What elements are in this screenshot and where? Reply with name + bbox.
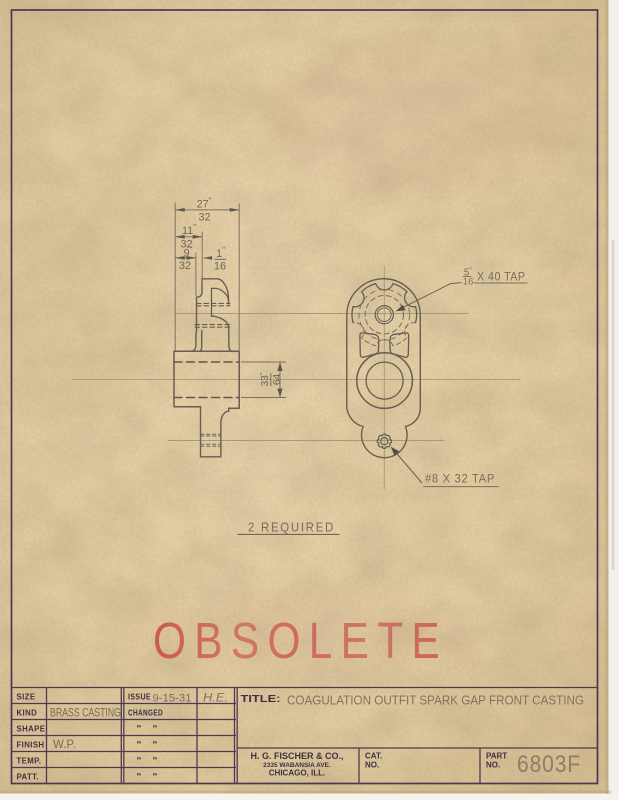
svg-text:9-15-31: 9-15-31 xyxy=(153,693,192,705)
svg-text:": " xyxy=(137,740,142,751)
svg-text:32: 32 xyxy=(198,212,210,224)
svg-text:CHANGED: CHANGED xyxy=(128,709,163,718)
svg-text:H.E.: H.E. xyxy=(203,693,228,705)
svg-text:NO.: NO. xyxy=(486,761,500,770)
svg-text:CAT.: CAT. xyxy=(365,752,382,761)
svg-text:#8 X 32 TAP: #8 X 32 TAP xyxy=(425,472,495,486)
svg-text:BRASS CASTING: BRASS CASTING xyxy=(50,708,121,720)
svg-text:SHAPE: SHAPE xyxy=(17,725,46,734)
svg-text:": " xyxy=(137,772,142,783)
svg-text:SIZE: SIZE xyxy=(17,693,36,702)
svg-text:": " xyxy=(153,772,158,783)
svg-text:ISSUE: ISSUE xyxy=(128,693,151,702)
svg-text:": " xyxy=(153,756,158,767)
svg-text:NO.: NO. xyxy=(365,761,379,770)
svg-text:TITLE:: TITLE: xyxy=(241,693,281,705)
svg-text:COAGULATION OUTFIT SPARK GAP F: COAGULATION OUTFIT SPARK GAP FRONT CASTI… xyxy=(287,694,584,708)
svg-text:64: 64 xyxy=(272,374,283,386)
svg-text:KIND: KIND xyxy=(17,709,38,718)
svg-text:X 40 TAP: X 40 TAP xyxy=(477,269,526,283)
svg-text:FINISH: FINISH xyxy=(17,741,45,750)
svg-text:16: 16 xyxy=(214,261,226,273)
svg-text:16: 16 xyxy=(463,276,474,287)
svg-text:TEMP.: TEMP. xyxy=(17,757,42,766)
svg-text:CHICAGO, ILL.: CHICAGO, ILL. xyxy=(269,769,325,778)
svg-text:OBSOLETE: OBSOLETE xyxy=(153,612,448,669)
svg-text:PART: PART xyxy=(486,752,507,761)
svg-text:": " xyxy=(137,756,142,767)
svg-text:": " xyxy=(137,724,142,735)
svg-text:2 REQUIRED: 2 REQUIRED xyxy=(248,520,335,535)
svg-text:6803F: 6803F xyxy=(517,751,581,778)
svg-text:PATT.: PATT. xyxy=(17,773,40,782)
svg-text:32: 32 xyxy=(179,260,191,272)
svg-text:": " xyxy=(153,724,158,735)
svg-text:H. G. FISCHER & CO.,: H. G. FISCHER & CO., xyxy=(250,751,343,761)
svg-text:W.P.: W.P. xyxy=(53,739,76,751)
svg-text:": " xyxy=(153,740,158,751)
